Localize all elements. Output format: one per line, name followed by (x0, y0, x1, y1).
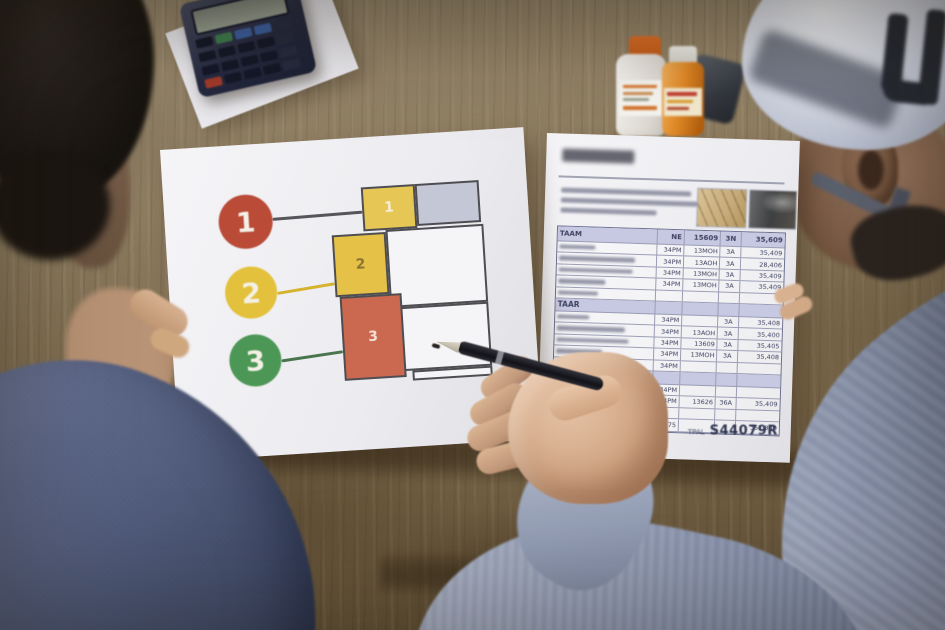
cell-empty (682, 302, 719, 315)
photo-scene: TAAMNE156093N35,60934PM13MOH3A35,40934PM… (0, 0, 945, 630)
illegible-item-text (558, 290, 598, 296)
cell-qty: 34PM (655, 326, 683, 337)
cell-unit: 36A (716, 398, 737, 409)
plan-room-2: 2 (332, 232, 390, 297)
cell-unit_price: 13AOH (684, 257, 721, 269)
legend-number-1: 1 (235, 205, 257, 239)
cell-qty: 34PM (655, 314, 683, 325)
cell-unit: 3A (717, 351, 738, 362)
cell-unit_price: 13MOH (684, 268, 721, 280)
calculator-key (218, 45, 237, 58)
document-title-blurred (562, 148, 634, 163)
white-bottle (616, 36, 666, 136)
cell-unit (716, 386, 737, 397)
cell-qty: 34PM (656, 267, 684, 278)
plan-room-gray (415, 180, 482, 226)
legend-number-2: 2 (240, 275, 262, 309)
calculator-key (260, 49, 279, 62)
column-header-unit: 3N (721, 232, 742, 247)
column-header-qty: NE (657, 230, 685, 245)
tool-photo-thumbnail (748, 189, 797, 229)
calculator-key (221, 58, 240, 71)
calculator-key (201, 63, 220, 76)
leader-line-1 (272, 211, 362, 221)
cell-unit_price (681, 361, 718, 373)
calculator-key (215, 32, 234, 45)
cell-unit: 3A (720, 281, 741, 292)
cell-unit_price: 13MOH (683, 280, 720, 292)
cell-qty: 34PM (654, 337, 682, 348)
cell-unit (717, 362, 738, 373)
cell-unit_price (682, 315, 719, 327)
cell-unit_price (680, 385, 717, 397)
cell-unit_price: 13MOH (684, 245, 721, 257)
room-2-label: 2 (355, 256, 366, 273)
cell-unit_price: 13626 (680, 397, 717, 409)
illegible-item-text (559, 256, 635, 263)
illegible-item-text (559, 244, 595, 250)
amber-bottle (662, 46, 704, 136)
cell-empty (655, 301, 683, 314)
cell-unit_price (683, 291, 720, 303)
illegible-item-text (558, 279, 606, 285)
total-label: TPAL (688, 428, 705, 436)
room-1-label: 1 (384, 199, 395, 216)
cell-empty (719, 303, 740, 316)
cell-unit (719, 292, 740, 303)
plan-room-white-lower (392, 302, 492, 372)
cell-qty: 34PM (653, 360, 681, 371)
legend-circle-1: 1 (217, 193, 274, 250)
leader-line-2 (277, 282, 335, 294)
cell-unit_price: 13609 (681, 338, 718, 350)
calculator-key (282, 58, 301, 71)
legend-circle-3: 3 (228, 333, 283, 388)
cell-unit: 3A (718, 339, 739, 350)
cell-unit_price: 13MOH (681, 349, 718, 361)
illegible-item-text (556, 337, 628, 344)
cell-amount: 35,405 (738, 340, 781, 352)
cell-qty (656, 290, 684, 301)
cell-unit_price (679, 408, 716, 420)
cell-qty: 34PM (656, 279, 684, 290)
calculator-key (237, 41, 256, 54)
illegible-item-text (557, 326, 625, 333)
cell-amount: 35,408 (739, 317, 782, 329)
column-header-unit_price: 15609 (685, 230, 722, 245)
calculator-key (273, 18, 292, 31)
calculator-key (243, 67, 262, 80)
cell-empty (737, 374, 780, 387)
calculator-key (224, 72, 243, 85)
cell-empty (680, 372, 717, 385)
pen-band (495, 351, 504, 365)
cell-unit: 3A (721, 247, 742, 258)
intro-text-line (561, 197, 703, 206)
white-bottle-label (619, 80, 663, 116)
intro-text-line (561, 187, 691, 196)
leader-line-3 (281, 350, 343, 362)
cell-amount (737, 363, 780, 375)
room-3-label: 3 (368, 329, 379, 346)
cell-empty (717, 373, 738, 386)
hard-hat-logo (879, 5, 945, 115)
cell-empty (739, 304, 782, 317)
plan-room-3: 3 (340, 293, 407, 381)
cell-unit: 3A (720, 269, 741, 280)
cell-amount: 35,409 (736, 398, 779, 410)
title-divider (559, 175, 785, 184)
illegible-item-text (557, 314, 589, 320)
calculator-key (257, 36, 276, 49)
amber-bottle-label (664, 88, 702, 116)
calculator-key (234, 27, 253, 40)
crack-photo-thumbnail (696, 188, 747, 229)
cell-qty: 34PM (654, 349, 682, 360)
calculator-key (279, 45, 298, 58)
calculator-key (195, 36, 214, 49)
calculator-key (204, 76, 223, 89)
plan-room-1: 1 (361, 184, 418, 231)
calculator-key (198, 50, 217, 63)
cell-unit: 3A (718, 316, 739, 327)
calculator-key (240, 54, 259, 67)
calculator-key (276, 32, 295, 45)
legend-circle-2: 2 (224, 265, 279, 320)
legend-number-3: 3 (245, 343, 267, 377)
calculator-key (254, 23, 273, 36)
right-person-inner-ear (858, 150, 884, 190)
cell-amount (737, 387, 780, 399)
column-header-amount: 35,609 (741, 232, 785, 247)
intro-text-line (561, 207, 657, 215)
cell-unit_price: 13AOH (682, 327, 719, 339)
cell-amount: 35,409 (741, 247, 784, 259)
cell-amount: 35,408 (738, 351, 781, 363)
cell-amount: 35,400 (738, 328, 781, 340)
cell-amount: 35,409 (740, 270, 783, 282)
cell-unit: 3A (720, 258, 741, 269)
calculator-key (263, 63, 282, 76)
cell-amount: 28,406 (741, 259, 784, 271)
illegible-item-text (559, 267, 633, 274)
total-value: S44079R (710, 423, 778, 438)
cell-unit: 3A (718, 328, 739, 339)
cell-qty: 34PM (657, 245, 685, 256)
cell-qty: 34PM (657, 256, 685, 267)
